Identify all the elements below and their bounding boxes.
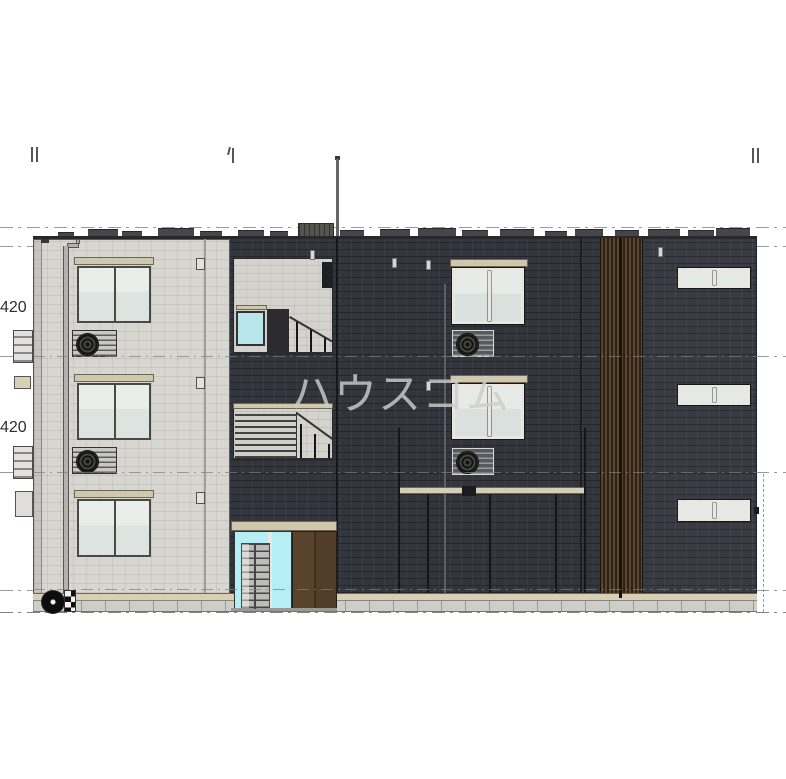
stairwell-corner-shadow (322, 262, 333, 288)
grid-tick-mid-bar (232, 148, 234, 163)
gate-latch-box (462, 486, 476, 496)
downspout (63, 246, 69, 593)
window-mullion (488, 271, 491, 321)
dimension-label-lower: 420 (0, 419, 27, 437)
window-mullion (713, 388, 716, 402)
wall-vent (196, 377, 205, 389)
wall-vent (196, 492, 205, 504)
floor-line-3f (33, 356, 757, 357)
parapet-fitting (41, 239, 49, 243)
rail-post (328, 444, 330, 459)
utility-box (15, 491, 33, 517)
window-header-3f-left (74, 257, 154, 265)
entrance-threshold (231, 608, 337, 611)
wall-fitting (754, 507, 759, 514)
window-mullion (114, 385, 116, 438)
ac-louver-box-3f-center (452, 330, 494, 357)
datum-line-right-vertical (763, 474, 764, 612)
wall-vent (426, 260, 431, 270)
mailbox-divider (254, 543, 256, 609)
louver-divider (619, 238, 622, 598)
slot-window-2f-right (678, 385, 750, 405)
datum-line-max-height (0, 227, 786, 228)
ac-fan-icon (456, 451, 479, 474)
grid-tick-mid-apostrophe (227, 147, 231, 155)
landing-edge-3f (233, 352, 333, 355)
window-header-2f-left (74, 374, 154, 382)
ac-louver-box-2f-left (72, 447, 117, 474)
floor-line-1f (33, 589, 757, 590)
gate-post (555, 494, 557, 593)
outdoor-fan-unit (41, 590, 65, 614)
wall-vent (658, 247, 663, 257)
window-1f-left (77, 499, 151, 557)
window-mullion (713, 503, 716, 518)
wall-vent (310, 250, 315, 260)
stair-pillar (267, 309, 289, 355)
base-trim-band (33, 593, 757, 601)
elevation-drawing-canvas: 420 420 (0, 0, 786, 779)
rail-post (310, 330, 312, 353)
datum-line-ground (0, 612, 786, 613)
hatch-marker (64, 590, 76, 612)
rail-post (314, 434, 316, 459)
window-header-1f-left (74, 490, 154, 498)
window-3f-left (77, 266, 151, 323)
ac-fan-icon (76, 333, 99, 356)
stair-window (236, 311, 265, 346)
window-header-3f-center (450, 259, 528, 267)
gate-top-rail (398, 487, 586, 494)
window-mullion (114, 501, 116, 555)
ac-louver-box-2f-center (452, 448, 494, 475)
grid-tick-left-b (36, 147, 38, 162)
mailbox-side-panel (242, 544, 249, 608)
grid-tick-left-a (31, 147, 33, 162)
stair-window-header (236, 305, 267, 310)
downspout-stub (76, 239, 80, 244)
entrance-canopy-header (231, 521, 337, 531)
parapet-edge (33, 236, 757, 239)
rail-post (300, 424, 302, 459)
slot-window-1f-right (678, 500, 750, 521)
right-wing-wall (642, 238, 757, 593)
landing-edge-2f (233, 458, 333, 461)
ac-louver-box-3f-left (72, 330, 117, 357)
siding-joint (204, 239, 206, 593)
gate-post (398, 428, 400, 593)
window-2f-left (77, 383, 151, 440)
entrance-double-door (292, 531, 337, 609)
rail-post (296, 322, 298, 353)
pipe-bracket-lower (13, 446, 33, 479)
slot-window-3f-right (678, 268, 750, 288)
wall-vent (392, 258, 397, 268)
gate-post (584, 428, 586, 593)
floor-line-2f (33, 472, 757, 473)
gate-post (489, 494, 491, 593)
grid-tick-right-a (752, 148, 754, 163)
grid-tick-right-b (757, 148, 759, 163)
foundation (33, 601, 757, 612)
ac-fan-icon (76, 450, 99, 473)
left-corner-board (33, 239, 42, 593)
window-mullion (713, 271, 716, 285)
lightning-rod (336, 159, 339, 239)
wall-vent (196, 258, 205, 270)
meter-box (14, 376, 31, 389)
watermark: ハウスコム (290, 360, 510, 422)
ac-fan-icon (456, 333, 479, 356)
rail-post (324, 338, 326, 353)
stair-flight (235, 412, 297, 458)
dimension-label-upper: 420 (0, 299, 27, 317)
window-mullion (114, 268, 116, 321)
panel-joint (580, 238, 582, 593)
window-3f-center (452, 268, 524, 324)
pipe-bracket-upper (13, 330, 33, 363)
gate-post (427, 494, 429, 593)
vent-pipe (444, 284, 446, 593)
